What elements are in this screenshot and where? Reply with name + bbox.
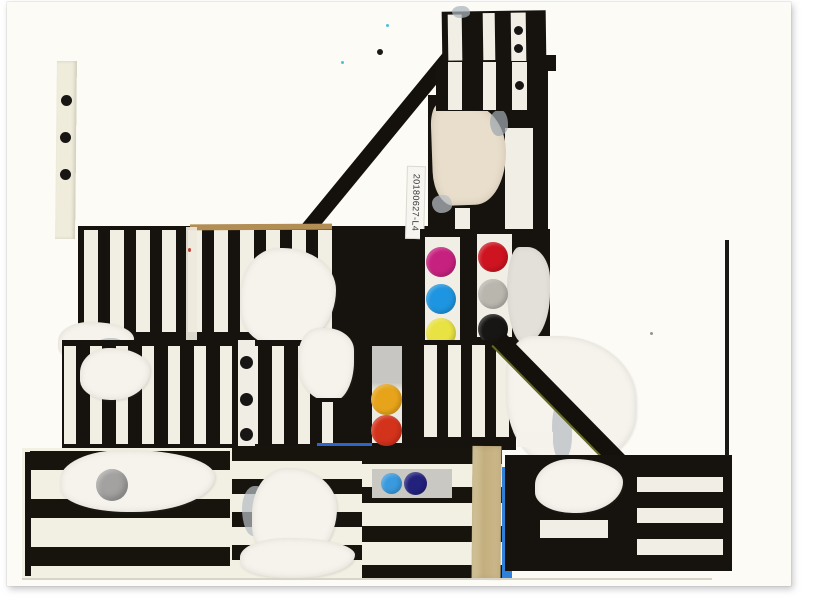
white-scrap bbox=[517, 432, 553, 447]
blue-line bbox=[317, 443, 372, 446]
white-stripe bbox=[483, 13, 496, 60]
tower-mid-block bbox=[436, 61, 548, 111]
gray-tape-bit bbox=[452, 6, 470, 18]
bottom-right-black-block bbox=[505, 455, 732, 571]
black-dot-sticker bbox=[240, 356, 253, 369]
black-dot-sticker bbox=[240, 393, 253, 406]
black-dot-sticker bbox=[514, 26, 523, 35]
white-stripe bbox=[448, 62, 462, 110]
gray-smudge bbox=[432, 195, 452, 213]
cyan-speck bbox=[341, 61, 344, 64]
white-stripes bbox=[424, 345, 516, 437]
tan-tape-strip bbox=[472, 446, 502, 580]
white-bar bbox=[505, 128, 533, 230]
striped-band-middle bbox=[78, 226, 428, 347]
collage-bottom-edge bbox=[22, 578, 712, 580]
white-stripe bbox=[483, 62, 496, 110]
sky-blue-dot-sticker bbox=[381, 473, 402, 494]
silver-dot-sticker bbox=[96, 469, 128, 501]
black-dot-sticker bbox=[515, 81, 524, 90]
red-dot-sticker bbox=[478, 242, 508, 272]
tower-right-notch bbox=[546, 55, 556, 71]
tan-tape-edge bbox=[190, 224, 332, 231]
white-stripe bbox=[322, 402, 333, 448]
white-stripe-row bbox=[637, 508, 723, 523]
navy-dot-sticker bbox=[404, 472, 427, 495]
orange-red-dot-sticker bbox=[371, 415, 402, 446]
tower-top-block bbox=[442, 10, 547, 62]
white-stripe-row bbox=[637, 539, 723, 555]
striped-band-lower bbox=[62, 340, 516, 450]
black-dot-sticker bbox=[60, 132, 71, 143]
orange-dot-sticker bbox=[371, 384, 402, 415]
bottom-left-striped-block bbox=[22, 448, 232, 579]
black-dot-sticker bbox=[60, 169, 71, 180]
seam-strip bbox=[186, 227, 197, 346]
red-speck bbox=[188, 248, 191, 252]
black-dot-sticker bbox=[240, 428, 253, 441]
torn-paper-patch bbox=[507, 247, 550, 343]
white-stripe bbox=[511, 13, 527, 62]
gray-smudge bbox=[490, 110, 508, 136]
cyan-dot-sticker bbox=[426, 284, 456, 314]
left-tape-strip bbox=[55, 61, 77, 239]
cyan-speck bbox=[386, 24, 389, 27]
black-dot-sticker bbox=[514, 44, 523, 53]
white-stripe-row bbox=[540, 520, 608, 538]
white-stripe bbox=[448, 14, 463, 60]
scanned-collage-artwork: 20180627-L4 bbox=[0, 0, 818, 600]
white-stripe-row bbox=[637, 477, 723, 492]
black-dot-sticker bbox=[61, 95, 72, 106]
magenta-dot-sticker bbox=[426, 247, 456, 277]
gray-speck bbox=[650, 332, 653, 335]
black-speck bbox=[377, 49, 383, 55]
torn-paper-patch bbox=[535, 459, 623, 513]
bottom-center-striped-block bbox=[232, 446, 362, 579]
tower-black-block bbox=[428, 95, 548, 236]
thin-vertical-line bbox=[725, 240, 729, 456]
gray-dot-sticker bbox=[478, 279, 508, 309]
